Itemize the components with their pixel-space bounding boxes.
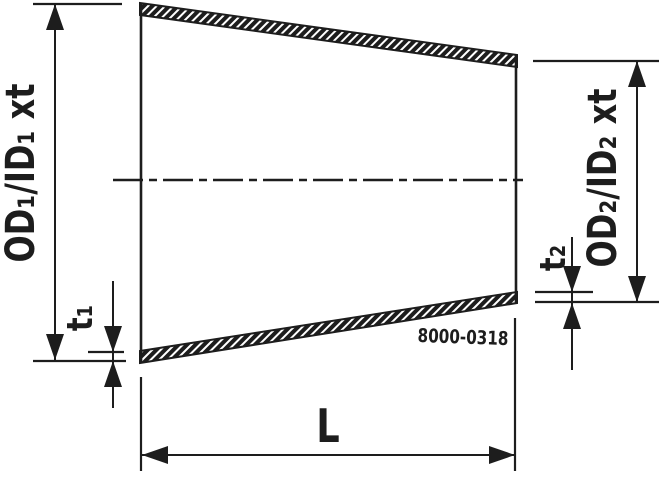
top-wall-section	[140, 3, 517, 67]
length-arrow-right-icon	[489, 446, 515, 464]
t1-dimension: t₁	[59, 281, 124, 408]
t2-arrow-up-icon	[563, 303, 581, 329]
t2-label: t₂	[532, 245, 574, 271]
reducer-drawing: OD₁/ID₁ xt t₁ OD₂/ID₂ xt t₂	[0, 0, 659, 477]
t1-arrow-down-icon	[104, 326, 122, 352]
od1-label: OD₁/ID₁ xt	[0, 83, 44, 262]
length-arrow-left-icon	[142, 446, 168, 464]
t1-label: t₁	[59, 305, 101, 331]
od2-label: OD₂/ID₂ xt	[578, 88, 625, 267]
od1-arrow-down-icon	[46, 334, 64, 360]
od1-arrow-up-icon	[46, 4, 64, 30]
reducer-body	[113, 3, 523, 363]
length-label: L	[316, 399, 339, 453]
t1-arrow-up-icon	[104, 361, 122, 387]
od2-arrow-up-icon	[628, 61, 646, 87]
part-number: 8000-0318	[417, 325, 509, 350]
od2-arrow-down-icon	[628, 276, 646, 302]
technical-drawing-page: OD₁/ID₁ xt t₁ OD₂/ID₂ xt t₂	[0, 0, 659, 477]
